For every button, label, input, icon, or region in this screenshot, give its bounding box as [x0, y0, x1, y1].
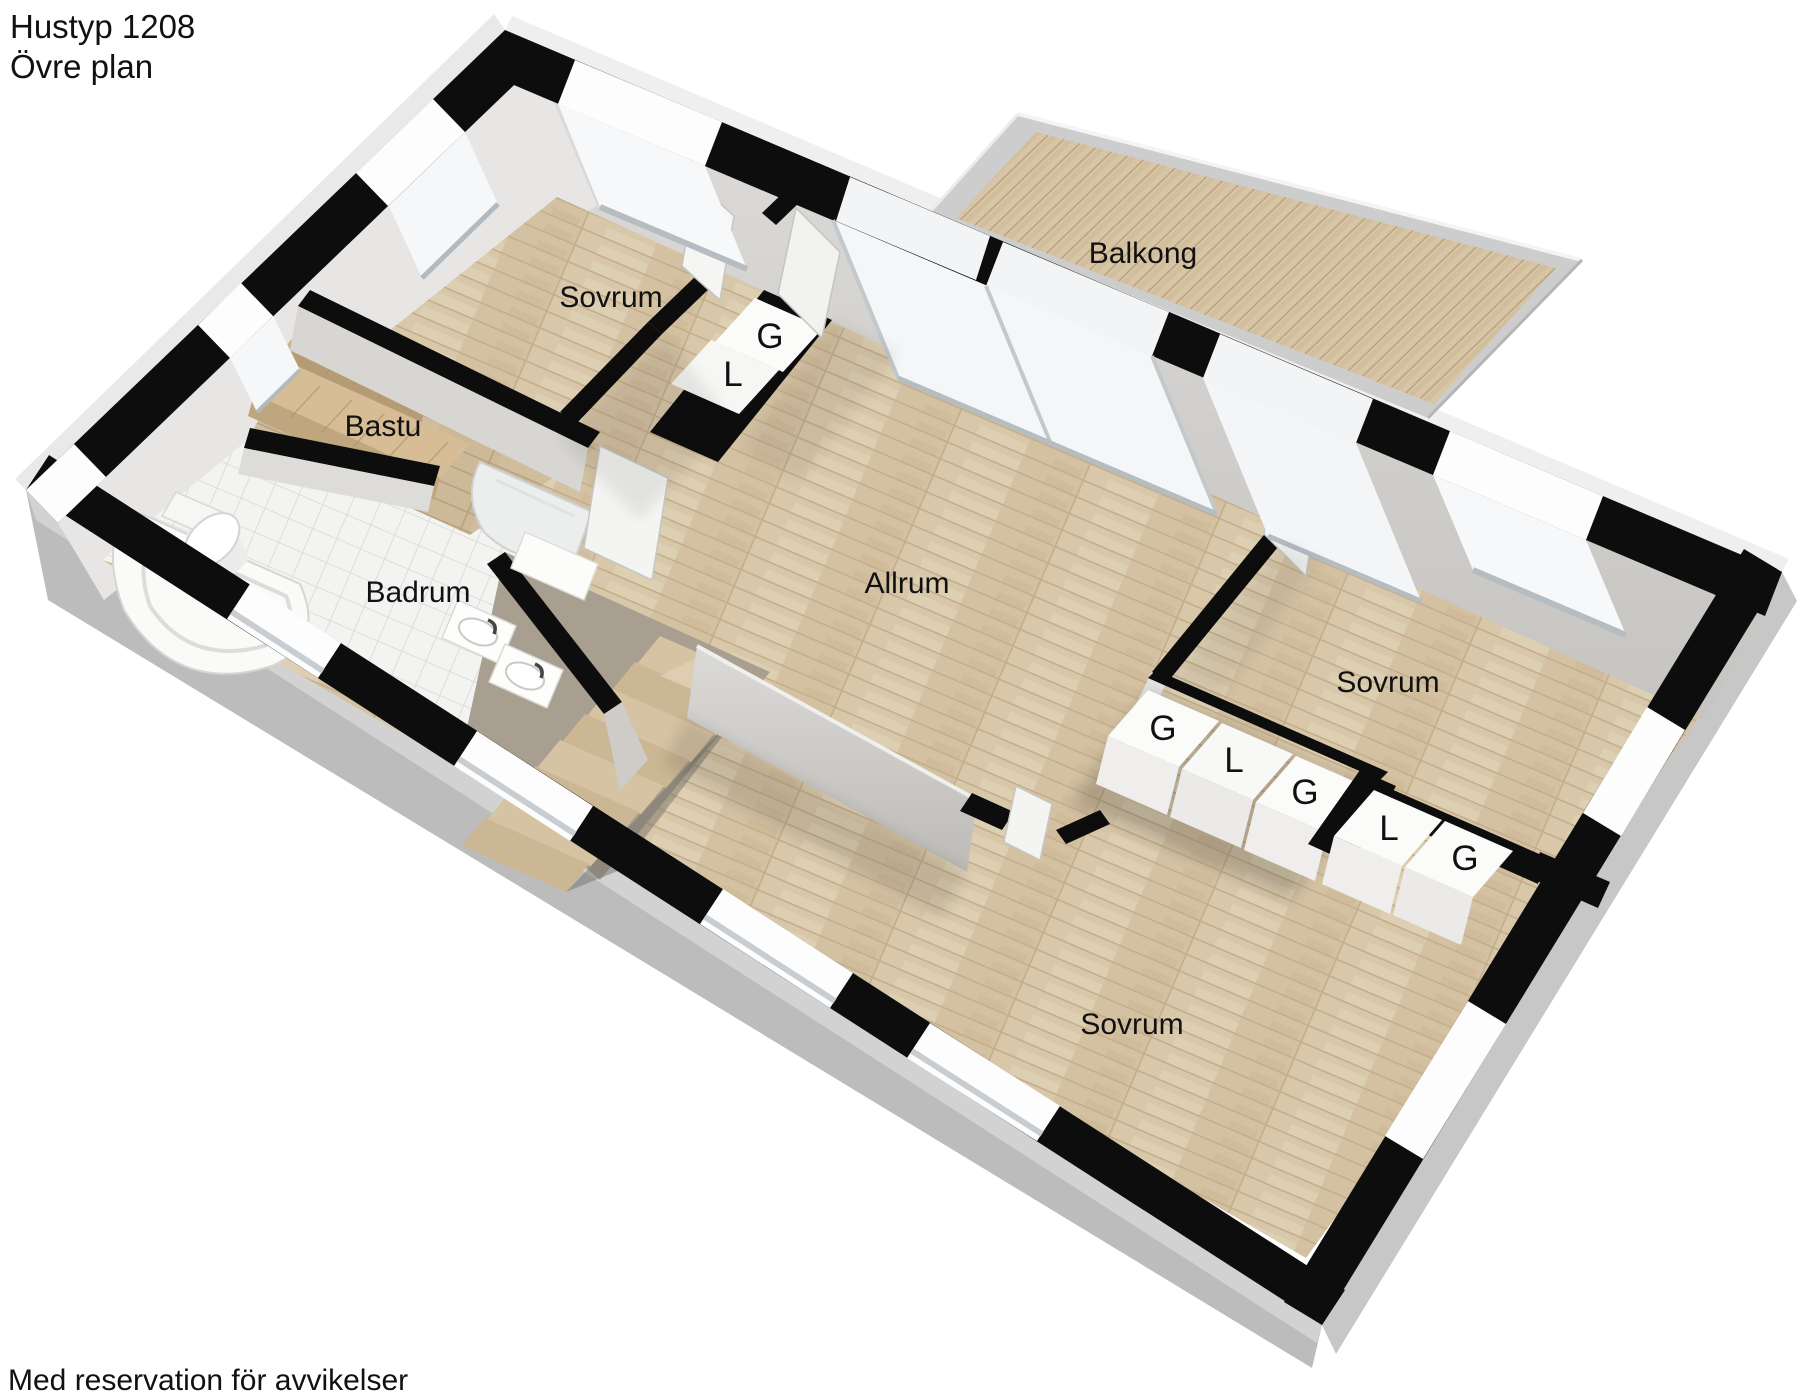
room-label-bathroom: Badrum	[365, 576, 470, 609]
wardrobe-label-bottom-g: G	[1451, 839, 1478, 878]
disclaimer-note: Med reservation för avvikelser	[8, 1364, 408, 1395]
plan-title: Hustyp 1208	[10, 8, 195, 45]
wardrobe-label-top-l: L	[723, 355, 742, 394]
room-label-sauna: Bastu	[345, 410, 422, 443]
room-label-living-room: Allrum	[864, 567, 949, 600]
room-label-balcony: Balkong	[1089, 237, 1197, 270]
wardrobe-label-hall-g1: G	[1149, 709, 1176, 748]
room-label-bedroom-right: Sovrum	[1336, 666, 1439, 699]
room-label-bedroom-bottom: Sovrum	[1080, 1008, 1183, 1041]
wardrobe-label-hall-g2: G	[1291, 773, 1318, 812]
wardrobe-label-bottom-l: L	[1379, 809, 1398, 848]
room-label-bedroom-top: Sovrum	[559, 281, 662, 314]
wardrobe-label-hall-l: L	[1224, 741, 1243, 780]
wardrobe-label-top-g: G	[756, 317, 783, 356]
floorplan-page: Hustyp 1208 Övre plan Med reservation fö…	[0, 0, 1800, 1395]
floorplan-canvas: Hustyp 1208 Övre plan Med reservation fö…	[0, 0, 1800, 1395]
plan-subtitle: Övre plan	[10, 48, 153, 85]
